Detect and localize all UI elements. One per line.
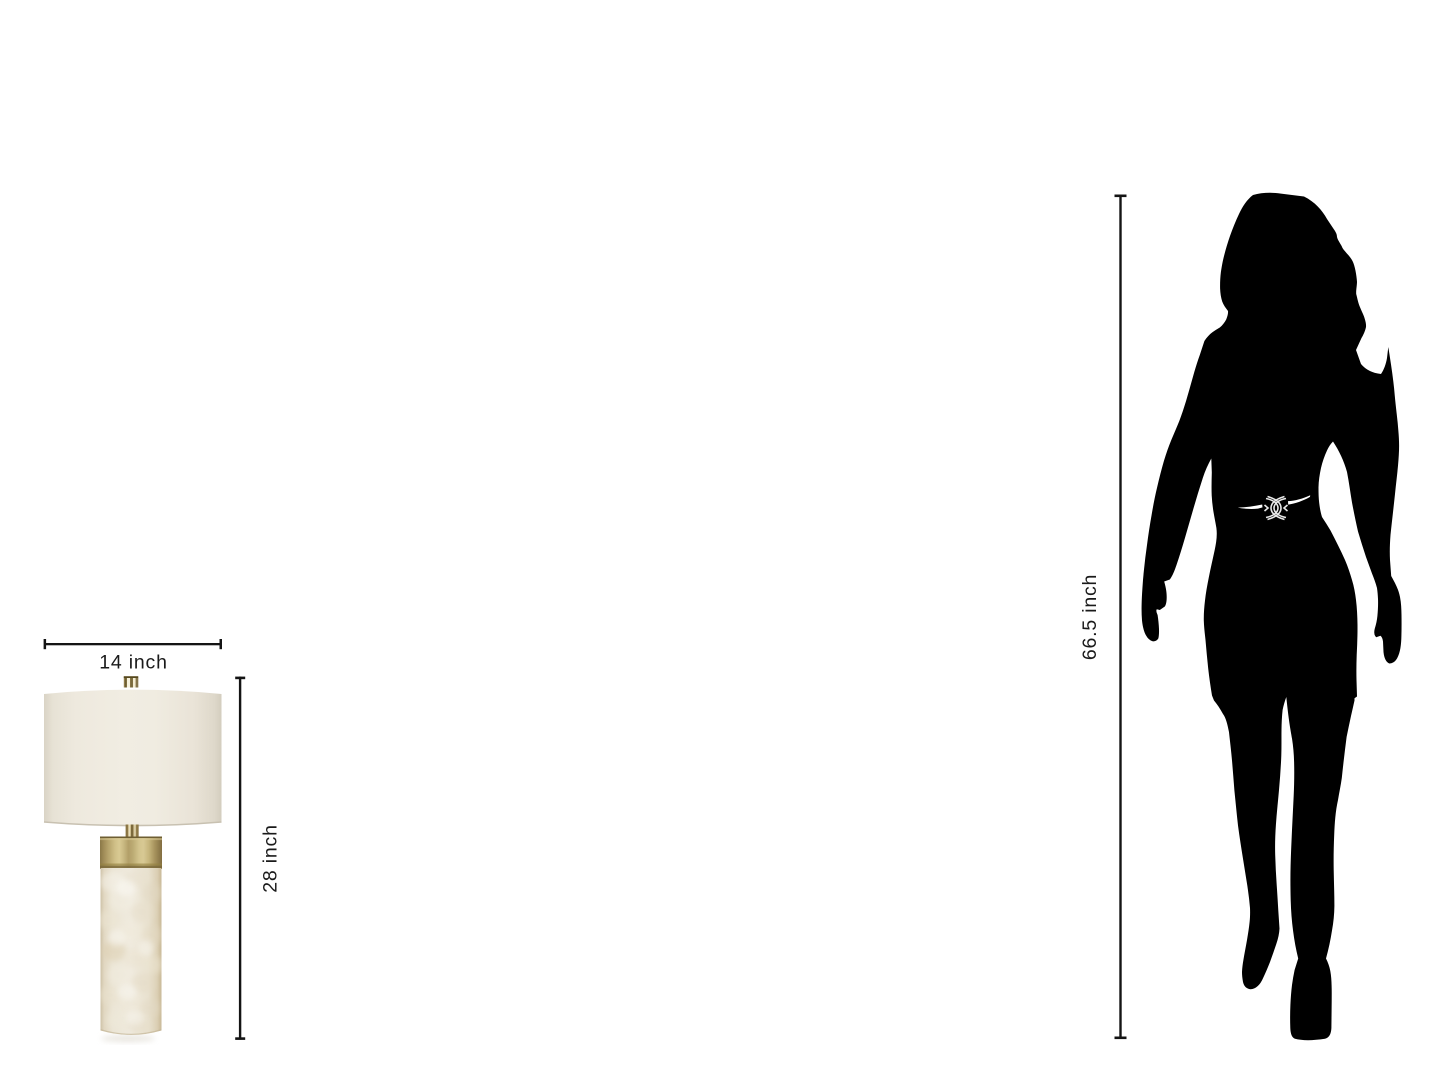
svg-text:66.5 inch: 66.5 inch — [1079, 574, 1101, 660]
svg-text:14 inch: 14 inch — [99, 652, 167, 674]
svg-text:28 inch: 28 inch — [260, 824, 282, 892]
